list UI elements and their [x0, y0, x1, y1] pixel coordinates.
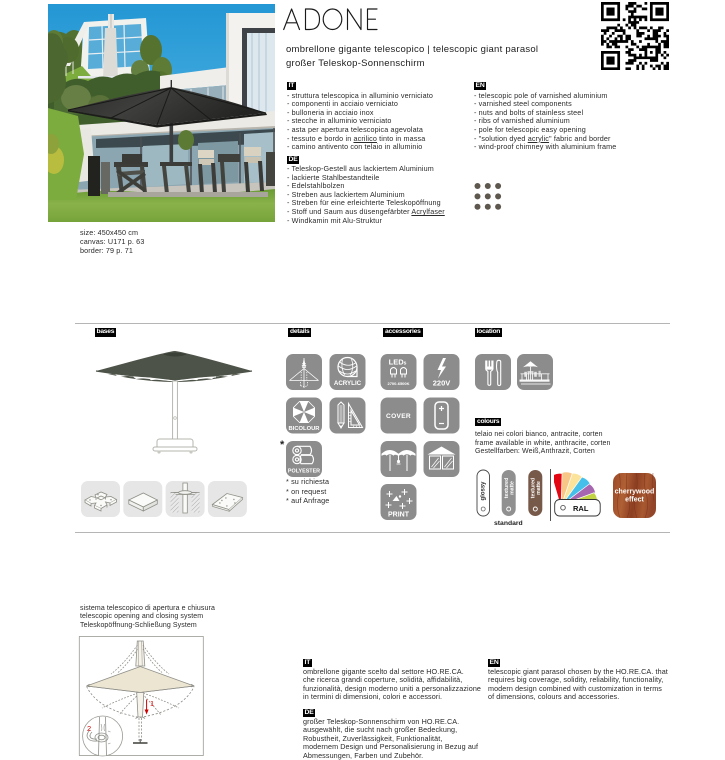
svg-text:220V: 220V — [433, 379, 451, 388]
svg-text:*: * — [280, 439, 285, 451]
svg-text:BICOLOUR: BICOLOUR — [289, 426, 321, 432]
svg-text:glossy: glossy — [481, 481, 487, 501]
svg-text:2700-6500K: 2700-6500K — [387, 381, 409, 386]
svg-text:matte: matte — [536, 481, 542, 495]
svg-text:effect: effect — [625, 497, 644, 504]
svg-text:COVER: COVER — [386, 413, 411, 420]
svg-text:RAL: RAL — [573, 504, 589, 513]
svg-text:ACRYLIC: ACRYLIC — [334, 380, 362, 387]
svg-text:matte: matte — [510, 481, 516, 495]
svg-text:PRINT: PRINT — [388, 512, 410, 519]
svg-text:2: 2 — [87, 724, 91, 733]
svg-text:cherrywood: cherrywood — [615, 489, 655, 496]
svg-text:1: 1 — [150, 699, 154, 708]
svg-text:POLYESTER: POLYESTER — [288, 469, 320, 475]
